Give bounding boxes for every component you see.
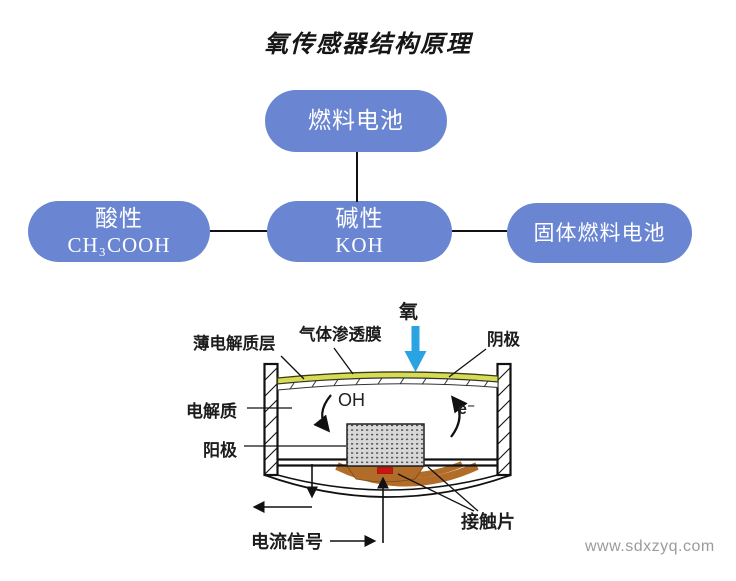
signal-contact-red — [378, 468, 393, 474]
oh-label: OH — [338, 390, 365, 411]
cathode-leader — [449, 349, 486, 377]
anode-block — [347, 424, 424, 466]
gas-membrane-leader — [334, 348, 353, 374]
sensor-structure-drawing — [0, 0, 736, 581]
oxygen-label: 氧 — [399, 297, 418, 324]
watermark: www.sdxzyq.com — [585, 538, 725, 556]
current-signal-label: 电流信号 — [251, 528, 323, 554]
right-wall — [498, 364, 511, 475]
cathode-label: 阴极 — [487, 326, 520, 350]
electron-label: e⁻ — [458, 399, 475, 419]
oh-flow-arrow-icon — [322, 395, 331, 430]
oxygen-sensor-diagram-page: 氧传感器结构原理 燃料电池 酸性 CH₃COOH 碱性 KOH 固体燃料电池 — [0, 0, 736, 581]
thin-electrolyte-layer-label: 薄电解质层 — [193, 330, 276, 354]
electrolyte-label: 电解质 — [186, 397, 237, 422]
gas-permeable-membrane-label: 气体渗透膜 — [299, 321, 382, 345]
left-wall — [265, 364, 278, 475]
contact-piece-label: 接触片 — [461, 508, 515, 534]
thin-electrolyte-leader — [281, 356, 304, 379]
oxygen-down-arrow-icon — [405, 326, 427, 372]
anode-label: 阳极 — [203, 436, 237, 461]
